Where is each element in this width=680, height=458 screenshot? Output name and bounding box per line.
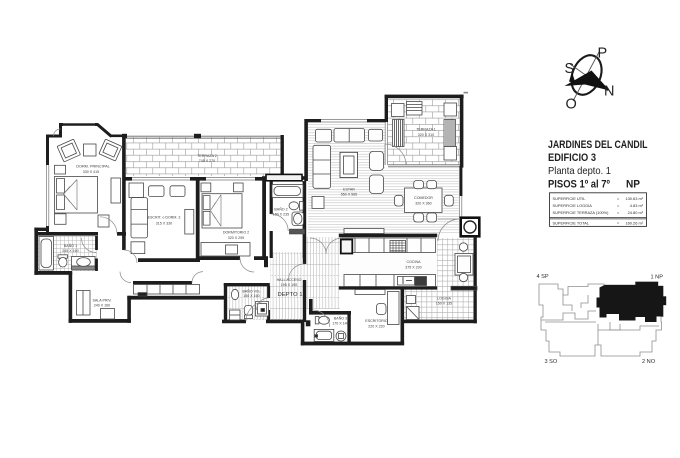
svg-text:550 X 565: 550 X 565	[341, 193, 357, 197]
svg-text:245 X 160: 245 X 160	[62, 249, 78, 253]
svg-text:24.80 m²: 24.80 m²	[628, 210, 644, 215]
svg-text:ESCRITORIO: ESCRITORIO	[365, 319, 388, 323]
svg-text:SUPERFICIE UTIL: SUPERFICIE UTIL	[553, 196, 587, 201]
svg-text:150 X 135: 150 X 135	[436, 302, 452, 306]
svg-text:SUPERFICIE TERRAZA (100%): SUPERFICIE TERRAZA (100%)	[553, 210, 610, 215]
svg-text:LOGGIA: LOGGIA	[437, 297, 451, 301]
svg-text:EDIFICIO 3: EDIFICIO 3	[548, 152, 596, 164]
svg-text:ESTAR: ESTAR	[343, 188, 355, 192]
svg-text:P: P	[598, 46, 608, 62]
svg-text:1 NP: 1 NP	[651, 275, 664, 281]
svg-text:SUPERFICIE TOTAL: SUPERFICIE TOTAL	[553, 220, 590, 225]
svg-text:130.63 m²: 130.63 m²	[625, 196, 643, 201]
svg-text:SALA PRIV.: SALA PRIV.	[92, 299, 111, 303]
svg-text:150 X 160: 150 X 160	[243, 294, 259, 298]
svg-text:320 X 295: 320 X 295	[228, 236, 244, 240]
svg-text:COCINA: COCINA	[407, 260, 422, 264]
svg-text:TERRAZA 2: TERRAZA 2	[197, 154, 217, 158]
svg-text:2 NO: 2 NO	[642, 359, 656, 365]
svg-text:330 X 415: 330 X 415	[83, 170, 99, 174]
svg-text:4.83 m²: 4.83 m²	[630, 203, 644, 208]
svg-text:NP: NP	[626, 179, 640, 191]
svg-text:S: S	[565, 61, 575, 77]
svg-text:BAÑO 2: BAÑO 2	[274, 207, 287, 212]
svg-text:BAÑO 3: BAÑO 3	[334, 316, 347, 321]
svg-text:DORM. PRINCIPAL: DORM. PRINCIPAL	[76, 165, 109, 169]
svg-text:320 X 360: 320 X 360	[415, 202, 431, 206]
svg-text:PISOS 1º al 7º: PISOS 1º al 7º	[548, 179, 610, 191]
svg-text:ESCRIT. o DORM. 3: ESCRIT. o DORM. 3	[148, 216, 181, 220]
svg-text:N: N	[604, 84, 614, 100]
svg-text:BAÑO VIS.: BAÑO VIS.	[243, 289, 261, 294]
svg-text:4 SP: 4 SP	[537, 274, 549, 280]
svg-text:745 X 270: 745 X 270	[199, 159, 215, 163]
svg-text:HALL ACCESO: HALL ACCESO	[277, 278, 302, 282]
svg-text:220 X 220: 220 X 220	[368, 325, 384, 329]
svg-text:150 X 235: 150 X 235	[273, 213, 289, 217]
svg-text:DORMITORIO 2: DORMITORIO 2	[223, 231, 249, 235]
svg-text:SUPERFICIE LOGGIA: SUPERFICIE LOGGIA	[553, 203, 593, 208]
svg-text:COMEDOR: COMEDOR	[414, 196, 433, 200]
svg-text:240 X 160: 240 X 160	[94, 304, 110, 308]
svg-text:Planta depto. 1: Planta depto. 1	[548, 166, 611, 177]
svg-text:320 X 310: 320 X 310	[418, 133, 434, 137]
svg-text:DEPTO 1: DEPTO 1	[277, 292, 302, 298]
svg-text:JARDINES DEL CANDIL: JARDINES DEL CANDIL	[548, 139, 648, 151]
svg-text:O: O	[566, 97, 577, 113]
svg-text:3 SO: 3 SO	[545, 359, 558, 365]
svg-text:195 X 190: 195 X 190	[281, 283, 297, 287]
svg-text:160.26 m²: 160.26 m²	[625, 220, 643, 225]
svg-text:315 X 330: 315 X 330	[156, 222, 172, 226]
svg-text:BAÑO 1: BAÑO 1	[64, 243, 77, 248]
svg-text:TERRAZA 1: TERRAZA 1	[416, 128, 436, 132]
svg-text:170 X 140: 170 X 140	[332, 322, 348, 326]
svg-text:375 X 220: 375 X 220	[405, 266, 421, 270]
